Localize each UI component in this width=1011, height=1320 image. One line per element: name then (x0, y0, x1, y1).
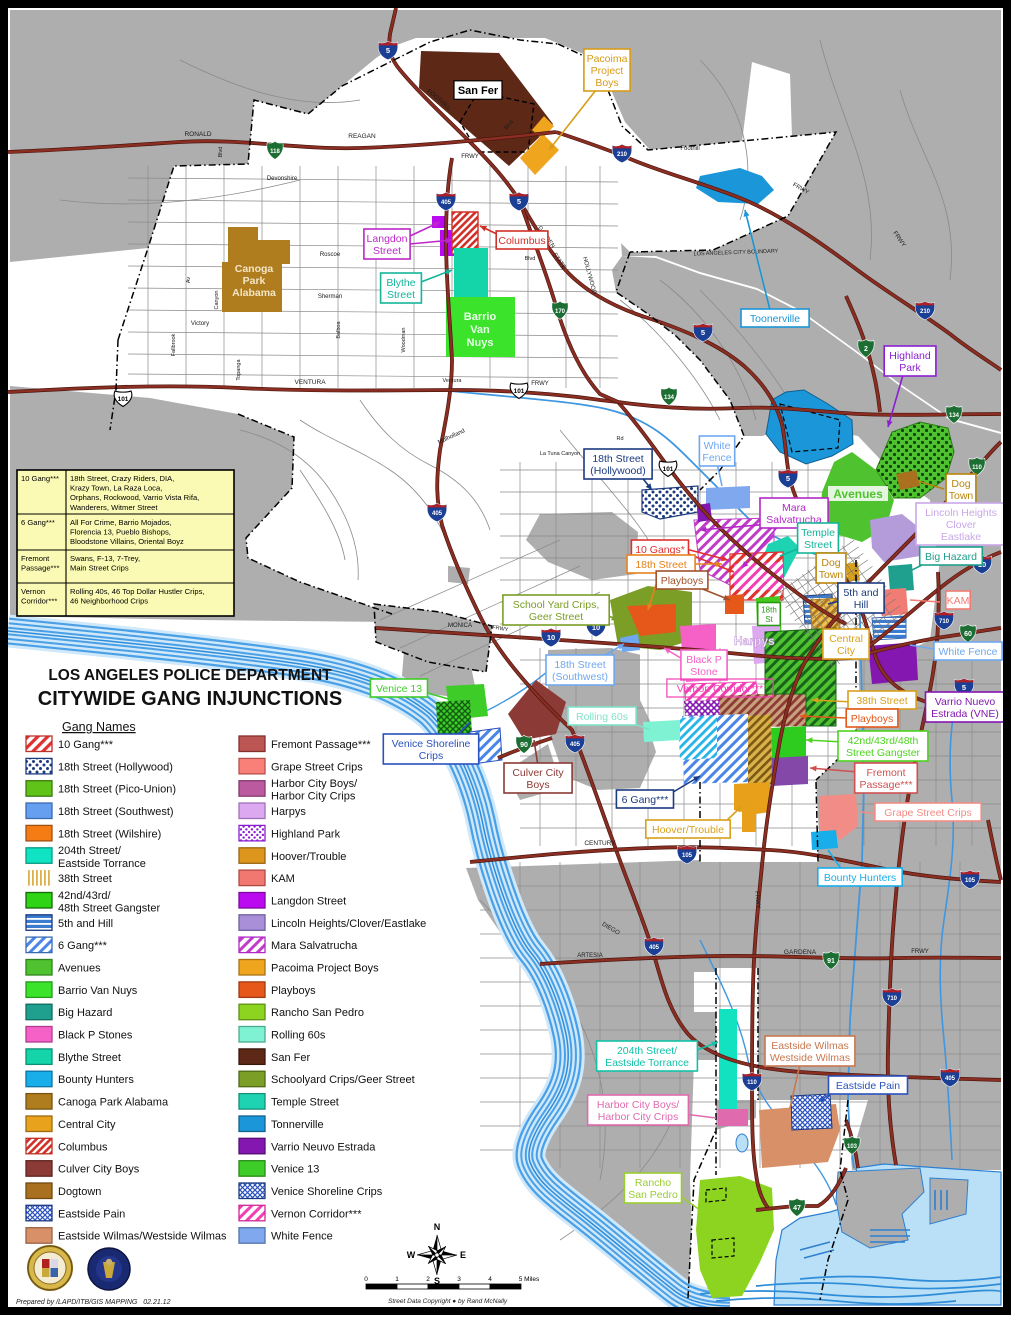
svg-text:Pacoima Project Boys: Pacoima Project Boys (271, 963, 379, 975)
svg-text:38th Street: 38th Street (58, 873, 112, 885)
svg-text:E: E (460, 1250, 466, 1260)
svg-text:Alabama: Alabama (232, 287, 276, 299)
svg-text:134: 134 (949, 413, 960, 419)
svg-text:103: 103 (847, 1144, 858, 1150)
svg-text:San Fer: San Fer (458, 85, 499, 97)
svg-text:Rancho San Pedro: Rancho San Pedro (271, 1007, 364, 1019)
svg-text:Canoga: Canoga (235, 263, 274, 275)
svg-text:Playboys: Playboys (661, 575, 704, 587)
svg-text:101: 101 (118, 396, 129, 403)
svg-text:10 Gang***: 10 Gang*** (21, 474, 59, 483)
svg-text:5: 5 (386, 46, 390, 55)
svg-text:Mara Salvatrucha: Mara Salvatrucha (271, 940, 358, 952)
svg-text:Langdon Street: Langdon Street (271, 896, 346, 908)
svg-text:Eastside Wilmas: Eastside Wilmas (771, 1040, 849, 1052)
svg-text:W: W (407, 1250, 416, 1260)
svg-text:Town: Town (949, 490, 974, 502)
svg-text:Black P: Black P (686, 654, 722, 666)
svg-text:105: 105 (682, 853, 693, 859)
svg-text:GARDENA: GARDENA (784, 949, 817, 956)
svg-text:Fremont: Fremont (21, 554, 50, 563)
svg-text:Devonshire: Devonshire (267, 176, 298, 182)
svg-text:Avenues: Avenues (58, 963, 101, 975)
svg-text:Harpys: Harpys (271, 806, 306, 818)
svg-text:2: 2 (864, 346, 868, 353)
svg-text:St: St (765, 615, 773, 624)
svg-text:Project: Project (591, 65, 624, 77)
svg-text:Blvd: Blvd (218, 147, 224, 158)
svg-text:710: 710 (887, 996, 898, 1002)
svg-text:Corridor***: Corridor*** (21, 597, 57, 606)
svg-text:Mara: Mara (782, 502, 806, 514)
svg-text:Toonerville: Toonerville (750, 313, 800, 325)
svg-text:Venice Shoreline: Venice Shoreline (392, 738, 471, 750)
svg-text:Harbor City Crips: Harbor City Crips (271, 791, 356, 803)
svg-text:Street Data Copyright ● by Ran: Street Data Copyright ● by Rand McNally (388, 1298, 508, 1305)
svg-text:Tonnerville: Tonnerville (271, 1119, 324, 1131)
svg-text:0: 0 (364, 1276, 368, 1283)
svg-text:Street: Street (373, 245, 401, 257)
svg-text:Park: Park (899, 362, 921, 374)
svg-text:Varrio Nuevo: Varrio Nuevo (935, 696, 996, 708)
svg-text:San Pedro: San Pedro (628, 1189, 678, 1201)
svg-text:Rolling 60s: Rolling 60s (576, 711, 628, 723)
svg-text:Eastside Torrance: Eastside Torrance (605, 1057, 689, 1069)
svg-text:Eastside Pain: Eastside Pain (58, 1208, 125, 1220)
svg-text:6 Gang***: 6 Gang*** (58, 940, 108, 952)
svg-text:5th and Hill: 5th and Hill (58, 918, 113, 930)
svg-text:Passage***: Passage*** (21, 564, 59, 573)
svg-text:Vernon: Vernon (21, 587, 45, 596)
svg-text:Highland: Highland (889, 350, 931, 362)
svg-text:405: 405 (649, 945, 660, 951)
svg-text:Highland Park: Highland Park (271, 828, 341, 840)
svg-text:Av: Av (186, 277, 192, 284)
svg-text:Balboa: Balboa (336, 321, 342, 339)
svg-text:Foothill: Foothill (680, 146, 699, 152)
svg-text:Venice Shoreline Crips: Venice Shoreline Crips (271, 1186, 383, 1198)
svg-text:Hill: Hill (854, 599, 869, 611)
svg-text:Westside Wilmas: Westside Wilmas (770, 1052, 850, 1064)
svg-text:405: 405 (570, 742, 581, 748)
svg-text:710: 710 (939, 619, 950, 625)
svg-text:1: 1 (395, 1276, 399, 1283)
svg-text:110: 110 (972, 465, 982, 471)
svg-text:Eastside Pain: Eastside Pain (836, 1080, 900, 1092)
svg-text:101: 101 (663, 466, 674, 473)
svg-text:Canyon: Canyon (214, 291, 220, 310)
svg-text:LOS ANGELES POLICE DEPARTMENT: LOS ANGELES POLICE DEPARTMENT (48, 667, 332, 684)
svg-text:5: 5 (517, 197, 521, 206)
svg-text:Krazy Town, La Raza Loca,: Krazy Town, La Raza Loca, (70, 484, 162, 493)
svg-text:Eastside Wilmas/Westside Wilma: Eastside Wilmas/Westside Wilmas (58, 1231, 227, 1243)
svg-text:Eastlake: Eastlake (941, 531, 981, 543)
svg-text:MONICA: MONICA (448, 623, 472, 629)
svg-text:White Fence: White Fence (271, 1231, 333, 1243)
svg-text:Playboys: Playboys (271, 985, 316, 997)
svg-text:10 Gang***: 10 Gang*** (58, 739, 114, 751)
svg-text:Culver City: Culver City (512, 767, 564, 779)
svg-text:Van: Van (470, 324, 490, 336)
svg-text:101: 101 (514, 388, 525, 395)
svg-text:Venice 13: Venice 13 (376, 683, 422, 695)
svg-text:170: 170 (555, 309, 566, 315)
svg-text:Playboys: Playboys (851, 713, 894, 725)
svg-text:School Yard Crips,: School Yard Crips, (513, 599, 600, 611)
svg-text:Bloodstone Villains, Oriental: Bloodstone Villains, Oriental Boyz (70, 537, 184, 546)
svg-text:405: 405 (441, 200, 452, 206)
svg-text:CITYWIDE GANG INJUNCTIONS: CITYWIDE GANG INJUNCTIONS (38, 688, 342, 710)
svg-text:Venice 13: Venice 13 (271, 1164, 319, 1176)
svg-text:110: 110 (747, 1080, 757, 1086)
svg-text:Temple: Temple (801, 527, 835, 539)
svg-text:Orphans, Rockwood, Varrio Vist: Orphans, Rockwood, Varrio Vista Rifa, (70, 493, 199, 502)
svg-text:Topanga: Topanga (236, 359, 242, 381)
svg-text:Wanderers, Witmer Street: Wanderers, Witmer Street (70, 503, 158, 512)
svg-text:Street Gangster: Street Gangster (846, 747, 921, 759)
svg-text:46 Neighborhood Crips: 46 Neighborhood Crips (70, 597, 148, 606)
svg-text:Blythe: Blythe (386, 277, 415, 289)
svg-text:(Hollywood): (Hollywood) (590, 465, 645, 477)
svg-text:Grape Street Crips: Grape Street Crips (271, 761, 363, 773)
svg-text:91: 91 (827, 958, 835, 965)
svg-text:Town: Town (819, 569, 844, 581)
svg-text:Passage***: Passage*** (859, 779, 912, 791)
svg-text:Eastside Torrance: Eastside Torrance (58, 858, 146, 870)
svg-text:18th Street: 18th Street (554, 659, 605, 671)
svg-text:105: 105 (965, 878, 976, 884)
svg-text:6 Gang***: 6 Gang*** (21, 518, 55, 527)
svg-text:Rolling 40s, 46 Top Dollar Hus: Rolling 40s, 46 Top Dollar Hustler Crips… (70, 587, 205, 596)
svg-text:Geer Street: Geer Street (529, 611, 583, 623)
svg-text:118: 118 (270, 149, 280, 155)
svg-text:5: 5 (962, 683, 966, 692)
svg-text:Hoover/Trouble: Hoover/Trouble (652, 824, 724, 836)
svg-text:Sherman: Sherman (318, 294, 342, 300)
svg-text:Rolling 60s: Rolling 60s (271, 1030, 326, 1042)
svg-text:Fallbrook: Fallbrook (171, 333, 177, 356)
svg-text:5: 5 (701, 328, 705, 337)
svg-text:Estrada (VNE): Estrada (VNE) (931, 708, 999, 720)
svg-text:Boys: Boys (526, 779, 549, 791)
svg-text:KAM: KAM (271, 873, 295, 885)
svg-text:Avenues: Avenues (833, 487, 883, 501)
svg-text:Gang Names: Gang Names (62, 720, 136, 734)
svg-text:(Southwest): (Southwest) (552, 671, 608, 683)
svg-text:6 Gang***: 6 Gang*** (622, 794, 669, 806)
svg-text:White Fence: White Fence (939, 646, 998, 658)
svg-text:CENTURY: CENTURY (584, 840, 616, 847)
svg-text:Street: Street (804, 539, 832, 551)
svg-text:Blvd: Blvd (525, 256, 536, 262)
svg-text:Florencia 13, Pueblo Bishops,: Florencia 13, Pueblo Bishops, (70, 528, 171, 537)
svg-text:Prepared by /LAPD/ITB/GIS MAPP: Prepared by /LAPD/ITB/GIS MAPPING 02.21.… (16, 1299, 171, 1306)
svg-text:FRWY: FRWY (531, 381, 549, 387)
svg-text:La Tuna Canyon: La Tuna Canyon (540, 451, 580, 457)
svg-text:Victory: Victory (191, 321, 209, 327)
svg-text:2: 2 (426, 1276, 430, 1283)
svg-text:Dog: Dog (821, 557, 840, 569)
svg-text:Fremont Passage***: Fremont Passage*** (271, 739, 371, 751)
svg-text:City: City (837, 645, 856, 657)
svg-text:10: 10 (547, 633, 555, 642)
svg-text:134: 134 (664, 395, 675, 401)
svg-text:Columbus: Columbus (498, 235, 545, 247)
svg-text:42nd/43rd/48th: 42nd/43rd/48th (848, 735, 919, 747)
svg-text:204th Street/: 204th Street/ (617, 1045, 677, 1057)
svg-text:Canoga Park Alabama: Canoga Park Alabama (58, 1097, 169, 1109)
svg-text:204th Street/: 204th Street/ (58, 845, 122, 857)
svg-text:Columbus: Columbus (58, 1141, 108, 1153)
svg-text:White: White (704, 440, 731, 452)
svg-text:FRWY: FRWY (461, 154, 479, 160)
svg-text:5th and: 5th and (843, 587, 878, 599)
svg-text:Varrio Neuvo Estrada: Varrio Neuvo Estrada (271, 1141, 376, 1153)
svg-text:Central City: Central City (58, 1119, 116, 1131)
svg-text:Big Hazard: Big Hazard (925, 551, 977, 563)
svg-text:47: 47 (793, 1205, 801, 1212)
svg-text:Big Hazard: Big Hazard (58, 1007, 112, 1019)
svg-text:3: 3 (457, 1276, 461, 1283)
svg-text:18th Street, Crazy Riders, DIA: 18th Street, Crazy Riders, DIA, (70, 474, 174, 483)
svg-text:Langdon: Langdon (367, 233, 408, 245)
svg-text:18th Street (Southwest): 18th Street (Southwest) (58, 806, 174, 818)
svg-text:Harbor City Boys/: Harbor City Boys/ (271, 778, 358, 790)
svg-text:Rd: Rd (616, 436, 623, 442)
svg-text:Barrio: Barrio (464, 311, 497, 323)
svg-text:405: 405 (432, 511, 443, 517)
svg-text:18th Street: 18th Street (635, 559, 686, 571)
svg-text:Harbor City Boys/: Harbor City Boys/ (597, 1099, 679, 1111)
svg-text:48th Street Gangster: 48th Street Gangster (58, 903, 160, 915)
svg-text:Schoolyard Crips/Geer Street: Schoolyard Crips/Geer Street (271, 1074, 415, 1086)
svg-text:Grape Street Crips: Grape Street Crips (884, 807, 972, 819)
svg-text:Fence: Fence (702, 452, 731, 464)
svg-text:Roscoe: Roscoe (320, 252, 341, 258)
svg-text:Black P Stones: Black P Stones (58, 1030, 133, 1042)
svg-text:Harpys: Harpys (734, 634, 775, 648)
svg-text:Stone: Stone (690, 666, 718, 678)
svg-text:Woodman: Woodman (401, 328, 407, 353)
svg-text:4: 4 (488, 1276, 492, 1283)
svg-text:Pacoima: Pacoima (587, 53, 628, 65)
svg-text:Vernon Corridor***: Vernon Corridor*** (677, 683, 763, 695)
svg-text:18th: 18th (761, 605, 777, 614)
svg-text:Nuys: Nuys (467, 337, 494, 349)
svg-text:42nd/43rd/: 42nd/43rd/ (58, 890, 112, 902)
svg-text:Harbor City Crips: Harbor City Crips (598, 1111, 679, 1123)
svg-text:All For Crime, Barrio Mojados,: All For Crime, Barrio Mojados, (70, 518, 172, 527)
svg-text:90: 90 (520, 742, 528, 749)
svg-text:Culver City Boys: Culver City Boys (58, 1164, 140, 1176)
svg-text:210: 210 (617, 152, 628, 158)
svg-text:18th Street (Pico-Union): 18th Street (Pico-Union) (58, 784, 176, 796)
svg-text:Boys: Boys (595, 77, 618, 89)
svg-text:405: 405 (945, 1076, 956, 1082)
svg-text:38th Street: 38th Street (856, 695, 907, 707)
svg-text:Dogtown: Dogtown (58, 1186, 101, 1198)
svg-text:Main Street Crips: Main Street Crips (70, 564, 129, 573)
svg-text:18th Street (Hollywood): 18th Street (Hollywood) (58, 761, 173, 773)
svg-text:Dog: Dog (951, 478, 970, 490)
svg-text:Clover: Clover (946, 519, 977, 531)
svg-text:Swans, F-13, 7-Trey,: Swans, F-13, 7-Trey, (70, 554, 140, 563)
svg-text:Ventura: Ventura (443, 378, 463, 384)
svg-text:Temple Street: Temple Street (271, 1097, 339, 1109)
svg-text:Fremont: Fremont (866, 767, 905, 779)
svg-text:Bounty Hunters: Bounty Hunters (58, 1074, 134, 1086)
svg-text:Hoover/Trouble: Hoover/Trouble (271, 851, 346, 863)
svg-text:18th Street: 18th Street (592, 453, 643, 465)
svg-text:Central: Central (829, 633, 863, 645)
svg-text:N: N (434, 1222, 441, 1232)
svg-text:Blythe Street: Blythe Street (58, 1052, 121, 1064)
svg-text:RONALD: RONALD (184, 131, 211, 138)
svg-text:Crips: Crips (419, 750, 444, 762)
svg-text:Vernon Corridor***: Vernon Corridor*** (271, 1208, 362, 1220)
svg-text:Rancho: Rancho (635, 1177, 671, 1189)
svg-text:Lincoln Heights: Lincoln Heights (925, 507, 997, 519)
svg-text:REAGAN: REAGAN (348, 133, 376, 140)
svg-text:San Fer: San Fer (271, 1052, 310, 1064)
svg-text:Street: Street (387, 289, 415, 301)
svg-text:60: 60 (964, 631, 972, 638)
svg-text:18th Street (Wilshire): 18th Street (Wilshire) (58, 828, 161, 840)
svg-text:Lincoln Heights/Clover/Eastlak: Lincoln Heights/Clover/Eastlake (271, 918, 426, 930)
svg-text:Barrio Van Nuys: Barrio Van Nuys (58, 985, 138, 997)
svg-text:Park: Park (243, 275, 266, 287)
svg-text:10 Gangs*: 10 Gangs* (635, 544, 685, 556)
svg-text:210: 210 (920, 309, 931, 315)
svg-text:5 Miles: 5 Miles (519, 1276, 540, 1283)
svg-text:FRWY: FRWY (911, 949, 929, 955)
svg-text:VENTURA: VENTURA (294, 379, 326, 386)
svg-text:5: 5 (786, 474, 790, 483)
svg-text:ARTESIA: ARTESIA (577, 953, 603, 959)
svg-text:Bounty Hunters: Bounty Hunters (824, 872, 896, 884)
svg-text:KAM: KAM (947, 595, 970, 607)
